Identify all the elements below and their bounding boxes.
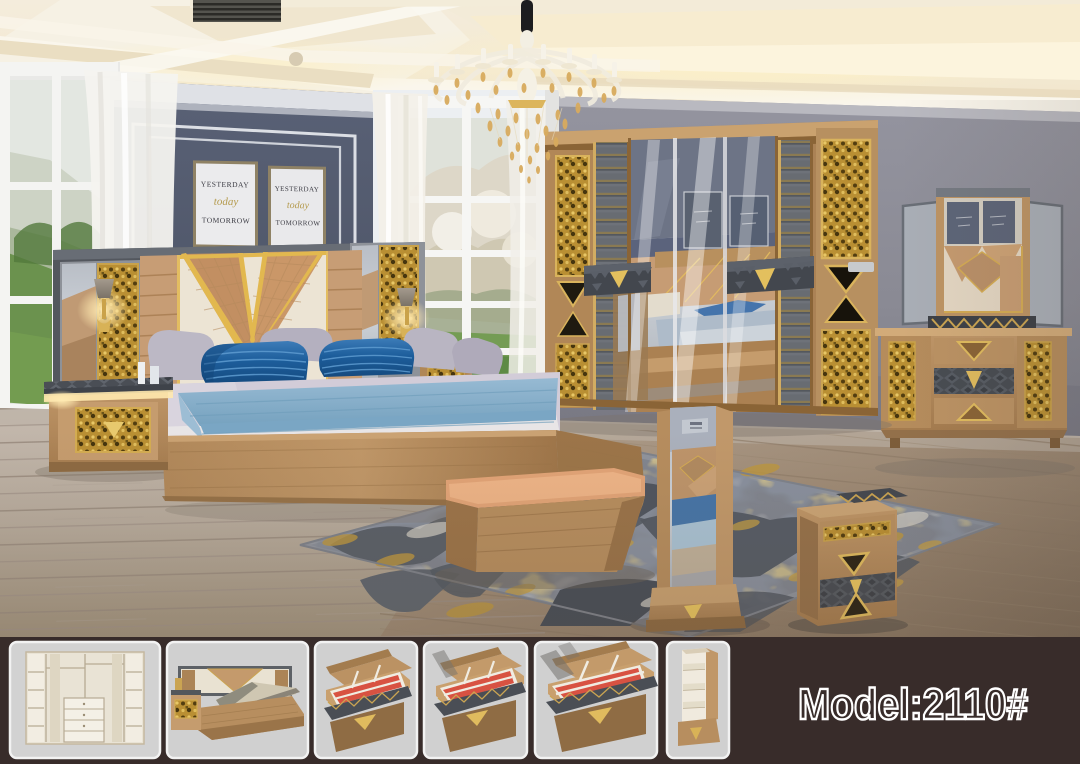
svg-text:today: today [287,200,310,211]
svg-text:today: today [214,196,239,208]
svg-text:TOMORROW: TOMORROW [202,216,251,226]
svg-text:TOMORROW: TOMORROW [276,219,321,228]
svg-text:YESTERDAY: YESTERDAY [201,180,249,190]
svg-text:Model:2110#: Model:2110# [798,680,1028,729]
svg-text:YESTERDAY: YESTERDAY [275,185,320,194]
